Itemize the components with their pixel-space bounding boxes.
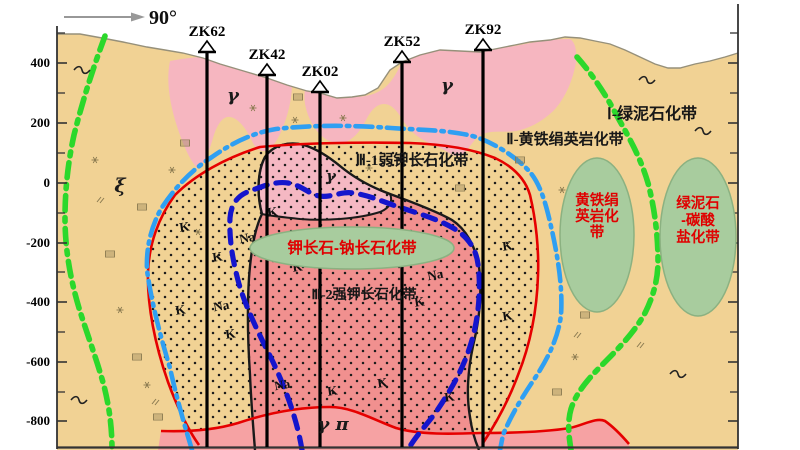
azimuth-label: 90°	[149, 7, 177, 29]
axis-labels: 4002000-200-400-600-800	[26, 55, 50, 428]
alteration-zone-label: Ⅲ-2强钾长石化带	[311, 286, 416, 303]
elevation-label: -400	[26, 294, 50, 309]
callout-text: 盐化带	[676, 228, 720, 246]
alteration-zone-label: Ⅰ-绿泥石化带	[607, 104, 697, 123]
sodium-label: Na	[426, 266, 445, 284]
geological-cross-section: 4002000-200-400-600-800 90° ZK62ZK42ZK02…	[0, 0, 800, 450]
elevation-label: 0	[44, 175, 51, 190]
rock-unit-label: ξ	[114, 175, 127, 197]
alteration-zone-label: Ⅲ-1弱钾长石化带	[356, 151, 469, 169]
elevation-label: 200	[31, 115, 51, 130]
alteration-zone-label: Ⅱ-黄铁绢英岩化带	[506, 130, 623, 148]
callout-text: 黄铁绢	[575, 191, 619, 209]
rock-unit-label: γ	[227, 85, 240, 106]
elevation-label: 400	[31, 55, 51, 70]
rock-unit-label: γ	[441, 75, 454, 96]
callout-text: 英岩化	[575, 207, 619, 225]
zone-callout: 黄铁绢英岩化带	[560, 158, 634, 312]
borehole-label: ZK02	[302, 64, 339, 80]
sodium-label: Na	[212, 297, 231, 315]
cross-section-svg: 4002000-200-400-600-800 90° ZK62ZK42ZK02…	[0, 0, 800, 450]
callout-text: -碳酸	[681, 211, 715, 229]
elevation-label: -800	[26, 413, 50, 428]
callout-text: 钾长石-钠长石化带	[287, 238, 417, 257]
elevation-label: -200	[26, 235, 50, 250]
callout-text: 绿泥石	[676, 194, 720, 212]
rock-unit-label: γ	[326, 167, 337, 185]
borehole-label: ZK42	[249, 47, 286, 63]
borehole-label: ZK92	[465, 22, 502, 38]
zone-callout: 绿泥石-碳酸盐化带	[660, 158, 736, 316]
borehole-label: ZK52	[384, 34, 421, 50]
sodium-label: Na	[273, 376, 292, 394]
callout-text: 带	[590, 224, 605, 241]
rock-unit-label: γ π	[317, 414, 349, 435]
zone-callout: 钾长石-钠长石化带	[250, 227, 454, 269]
elevation-label: -600	[26, 354, 50, 369]
borehole-label: ZK62	[189, 24, 226, 40]
